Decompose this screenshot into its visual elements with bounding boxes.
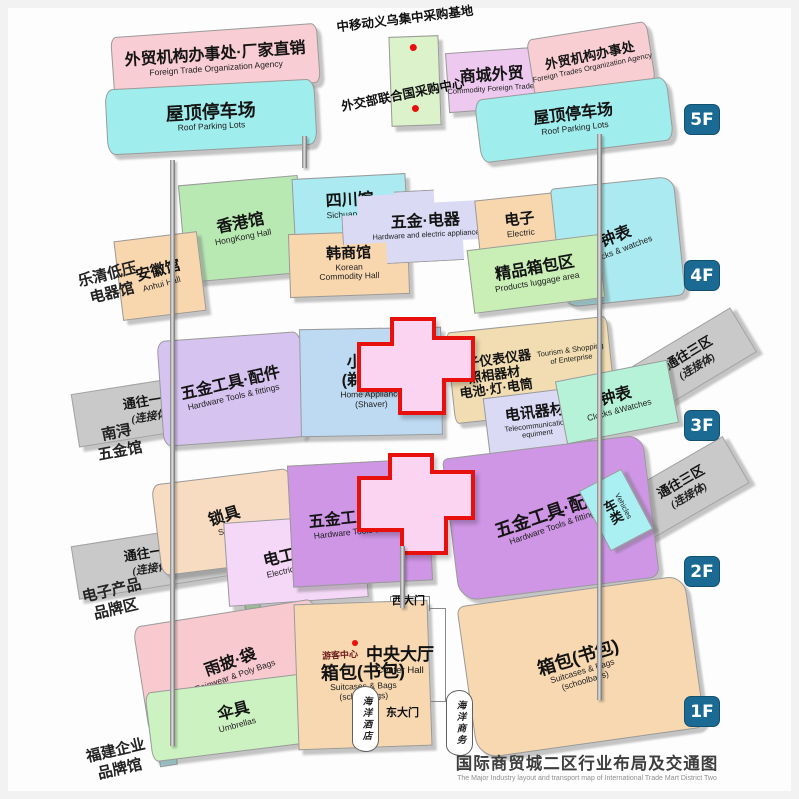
elevator-shaft-pole-left	[170, 160, 175, 746]
map-title-en: The Major Industry layout and transport …	[448, 775, 726, 782]
area-en2: Commodity Hall	[319, 271, 379, 283]
f3-hardware-tools: 五金工具·配件 Hardware Tools & fittings	[156, 331, 307, 447]
cross-atrium-3f	[356, 316, 476, 416]
ocean-hotel-bubble: 海洋酒店	[352, 686, 379, 752]
map-title-zh: 国际商贸城二区行业布局及交通图	[448, 750, 726, 774]
map-title: 国际商贸城二区行业布局及交通图 The Major Industry layou…	[448, 750, 726, 782]
area-en: Roof Parking Lots	[178, 120, 246, 133]
visitor-center-label: 游客中心	[322, 647, 359, 662]
center-hall-title: 中央大厅 Center Hall	[356, 640, 444, 676]
red-dot-marker	[412, 105, 419, 112]
east-gate-label: 东大门	[386, 704, 419, 720]
ocean-business-bubble: 海洋商务	[446, 690, 473, 756]
area-en2: equiment	[522, 428, 554, 440]
center-hall-zh: 中央大厅	[366, 645, 434, 664]
red-dot-marker	[410, 44, 417, 51]
west-gate-label: 西大门	[392, 592, 425, 608]
area-en: Electric	[506, 227, 535, 240]
ocean-hotel-label: 海洋酒店	[359, 696, 373, 742]
f1-bags-right: 箱包(书包) Suitcases & Bags (schoolbags)	[456, 575, 705, 760]
area-zh: 韩商馆	[326, 245, 372, 263]
floor-badge-1f: 1F	[684, 696, 720, 727]
f5-roof-parking-left: 屋顶停车场 Roof Parking Lots	[104, 79, 317, 156]
floor-badge-2f: 2F	[684, 556, 720, 587]
elevator-shaft-pole-right	[597, 134, 602, 700]
elevator-shaft-pole-center	[400, 546, 405, 608]
floor-badge-3f: 3F	[684, 410, 720, 441]
floor-badge-5f: 5F	[684, 104, 720, 135]
center-hall-en: Center Hall	[356, 665, 444, 676]
cross-atrium-2f	[356, 452, 476, 556]
elevator-shaft-pole-stub	[302, 136, 307, 168]
ocean-business-label: 海洋商务	[453, 700, 467, 746]
floor-badge-4f: 4F	[684, 260, 720, 291]
trade-mart-map: 外贸机构办事处·厂家直销 Foreign Trade Organization …	[0, 0, 799, 799]
